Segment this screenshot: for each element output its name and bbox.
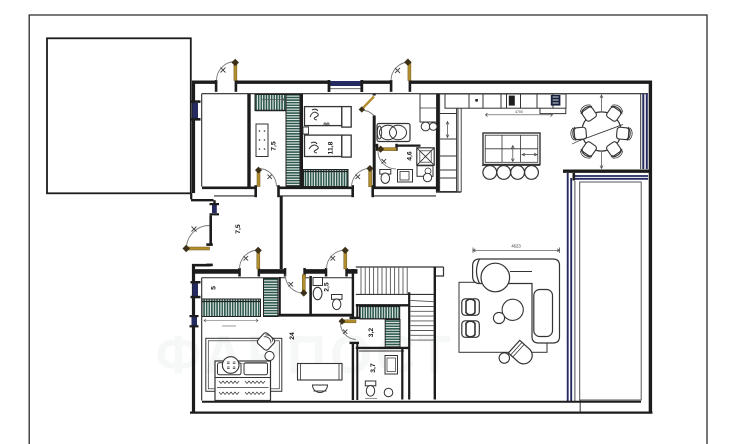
svg-text:3,7: 3,7: [370, 363, 377, 373]
svg-text:11,8: 11,8: [328, 141, 335, 154]
svg-text:2,5: 2,5: [324, 282, 331, 292]
svg-text:7,5: 7,5: [271, 141, 278, 151]
svg-text:4700: 4700: [515, 110, 523, 114]
svg-text:4,6: 4,6: [407, 151, 414, 161]
svg-text:3,2: 3,2: [368, 328, 375, 338]
svg-text:5: 5: [211, 286, 218, 290]
svg-text:7,5: 7,5: [235, 224, 242, 234]
svg-text:24: 24: [289, 332, 296, 340]
svg-text:4623: 4623: [511, 244, 521, 249]
